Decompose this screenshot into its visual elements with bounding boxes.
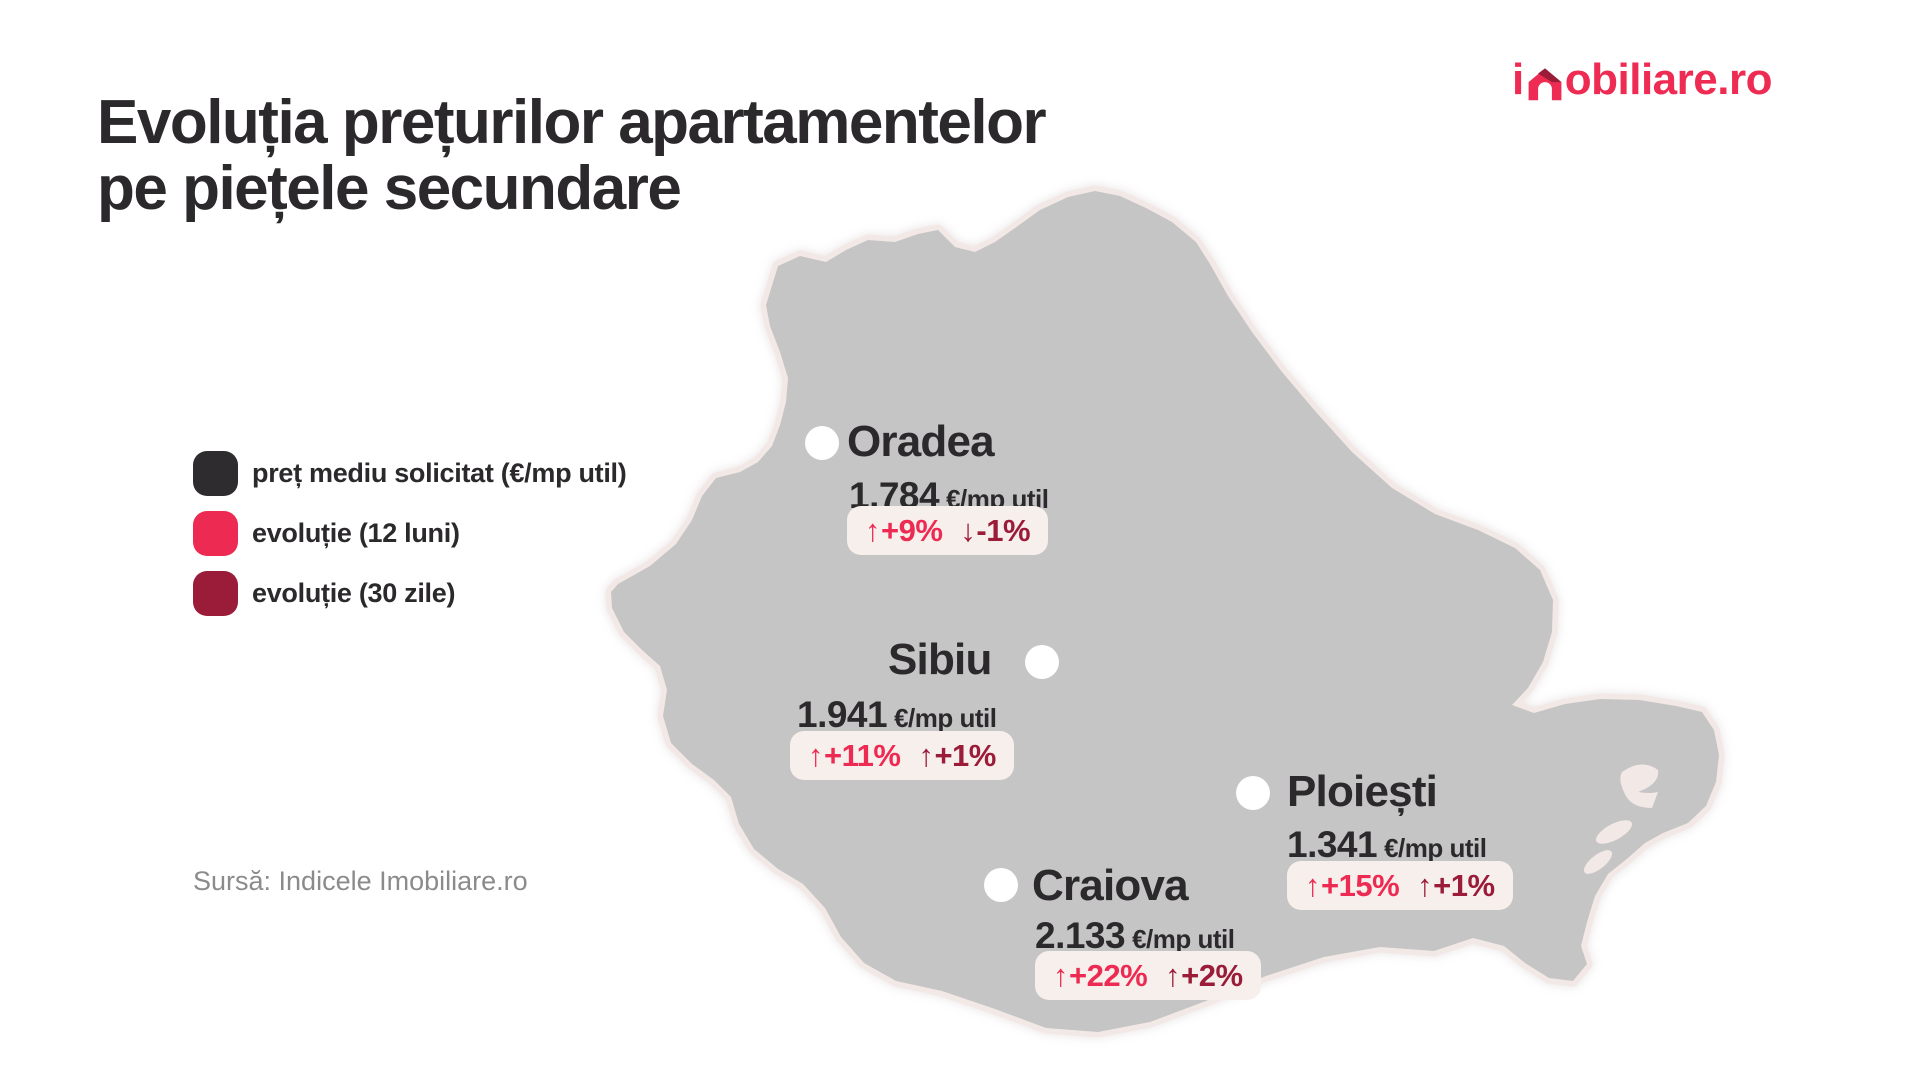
evolution-30d-value: +1% [934,740,995,771]
price-unit: €/mp util [894,705,996,731]
legend-label-evolution-30d: evoluție (30 zile) [252,578,455,609]
evolution-badge-ploiesti: ↑ +15% ↑ +1% [1287,861,1513,910]
legend-item-evolution-12m: evoluție (12 luni) [193,510,626,556]
legend-label-evolution-12m: evoluție (12 luni) [252,518,460,549]
source-note: Sursă: Indicele Imobiliare.ro [193,866,528,897]
legend-item-price: preț mediu solicitat (€/mp util) [193,450,626,496]
up-arrow-icon: ↑ [1305,870,1320,901]
up-arrow-icon: ↑ [1417,870,1432,901]
city-dot-craiova [984,868,1018,902]
evolution-30d-value: +1% [1433,870,1494,901]
evolution-badge-oradea: ↑ +9% ↓ -1% [847,506,1048,555]
price-unit: €/mp util [1384,835,1486,861]
legend-item-evolution-30d: evoluție (30 zile) [193,570,626,616]
city-price-craiova: 2.133 €/mp util [1035,917,1235,954]
danube-delta-arm-icon [1620,764,1658,808]
city-label-oradea: Oradea [847,420,994,464]
danube-delta-lake2-icon [1580,846,1615,878]
page-title-line1: Evoluția prețurilor apartamentelor [97,92,1045,154]
danube-delta-lake-icon [1593,816,1636,849]
city-dot-sibiu [1025,645,1059,679]
evolution-12m: ↑ +15% [1305,870,1399,901]
city-dot-ploiesti [1236,776,1270,810]
evolution-30d-value: -1% [976,515,1030,546]
legend-swatch-evolution-30d [193,571,238,616]
legend-label-price: preț mediu solicitat (€/mp util) [252,458,626,489]
city-dot-oradea [805,426,839,460]
down-arrow-icon: ↓ [960,515,975,546]
evolution-30d: ↑ +1% [1417,870,1494,901]
page-title-line2: pe piețele secundare [97,158,1045,220]
city-label-craiova: Craiova [1032,864,1188,908]
legend-swatch-price [193,451,238,496]
city-price-ploiesti: 1.341 €/mp util [1287,826,1487,863]
evolution-badge-sibiu: ↑ +11% ↑ +1% [790,731,1014,780]
evolution-12m-value: +15% [1321,870,1399,901]
price-unit: €/mp util [1132,926,1234,952]
evolution-12m-value: +22% [1069,960,1147,991]
evolution-12m: ↑ +9% [865,515,942,546]
logo-text-prefix: i [1512,58,1524,102]
city-label-sibiu: Sibiu [888,638,992,682]
evolution-30d: ↓ -1% [960,515,1030,546]
up-arrow-icon: ↑ [865,515,880,546]
evolution-12m: ↑ +11% [808,740,900,771]
legend-swatch-evolution-12m [193,511,238,556]
up-arrow-icon: ↑ [1165,960,1180,991]
evolution-12m: ↑ +22% [1053,960,1147,991]
house-m-icon [1526,65,1564,101]
up-arrow-icon: ↑ [1053,960,1068,991]
price-value: 1.341 [1287,826,1377,863]
legend: preț mediu solicitat (€/mp util) evoluți… [193,450,626,630]
city-label-ploiesti: Ploiești [1287,770,1437,814]
evolution-30d: ↑ +1% [918,740,995,771]
evolution-12m-value: +11% [824,740,900,771]
up-arrow-icon: ↑ [808,740,823,771]
city-price-sibiu: 1.941 €/mp util [797,696,997,733]
up-arrow-icon: ↑ [918,740,933,771]
evolution-30d-value: +2% [1181,960,1242,991]
brand-logo: i obiliare.ro [1512,58,1772,102]
evolution-12m-value: +9% [881,515,942,546]
infographic-canvas: Evoluția prețurilor apartamentelor pe pi… [0,0,1920,1080]
price-value: 1.941 [797,696,887,733]
page-title: Evoluția prețurilor apartamentelor pe pi… [97,92,1045,224]
evolution-badge-craiova: ↑ +22% ↑ +2% [1035,951,1261,1000]
evolution-30d: ↑ +2% [1165,960,1242,991]
logo-text-suffix: obiliare.ro [1565,58,1772,102]
price-value: 2.133 [1035,917,1125,954]
